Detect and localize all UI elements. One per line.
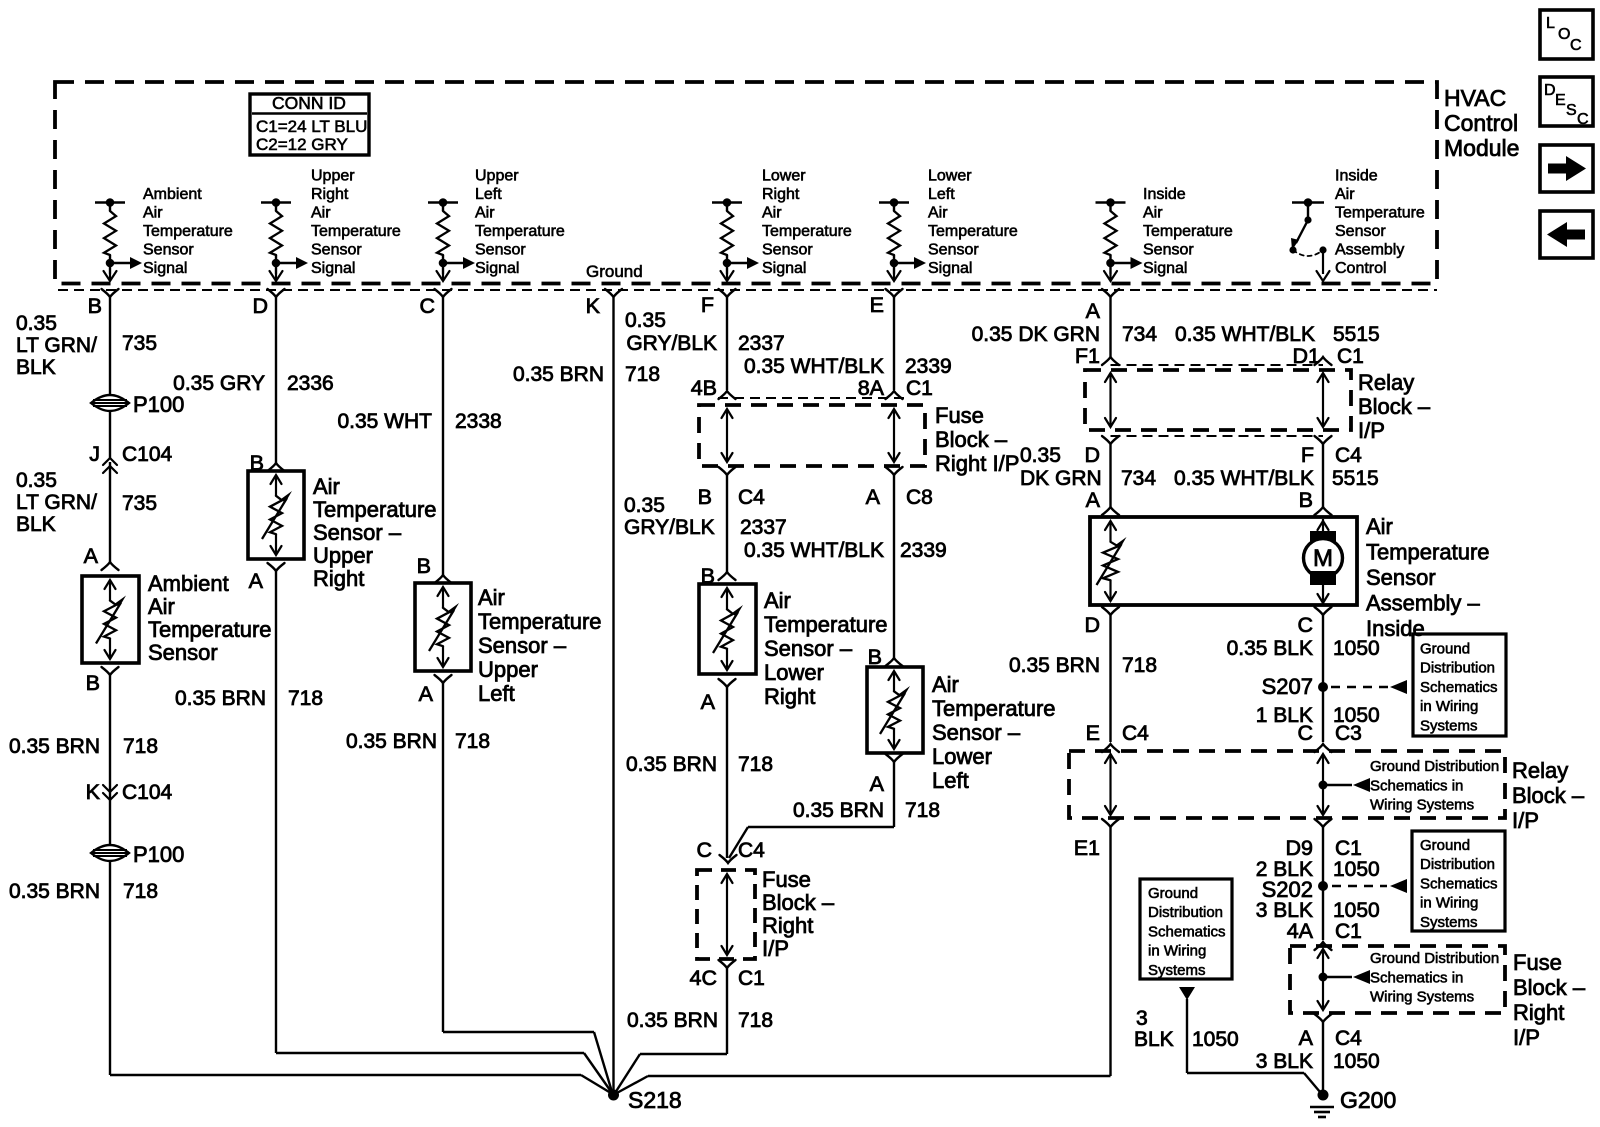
svg-text:Right: Right — [764, 684, 815, 709]
svg-text:Sensor: Sensor — [1143, 242, 1194, 259]
svg-text:Sensor –: Sensor – — [478, 633, 567, 658]
svg-text:Sensor: Sensor — [1366, 565, 1436, 590]
svg-text:Right: Right — [313, 566, 364, 591]
svg-text:C: C — [1297, 721, 1313, 745]
svg-text:8A: 8A — [858, 376, 885, 400]
svg-text:Assembly –: Assembly – — [1366, 591, 1480, 616]
svg-text:Temperature: Temperature — [148, 617, 272, 642]
svg-text:Sensor –: Sensor – — [764, 636, 853, 661]
svg-text:Lower: Lower — [764, 660, 824, 685]
svg-text:Sensor: Sensor — [1335, 223, 1386, 240]
svg-text:LT GRN/: LT GRN/ — [16, 491, 97, 514]
svg-text:D: D — [252, 294, 268, 318]
svg-text:1050: 1050 — [1333, 858, 1380, 881]
svg-text:0.35 BRN: 0.35 BRN — [175, 687, 266, 710]
svg-text:S207: S207 — [1262, 674, 1313, 699]
svg-text:A: A — [870, 772, 885, 796]
svg-text:0.35 DK GRN: 0.35 DK GRN — [972, 323, 1100, 346]
svg-text:718: 718 — [1122, 654, 1157, 677]
svg-text:Air: Air — [311, 205, 331, 222]
svg-text:S: S — [1566, 102, 1577, 119]
svg-text:Assembly: Assembly — [1335, 242, 1404, 259]
svg-text:Temperature: Temperature — [143, 223, 233, 240]
svg-text:C1=24 LT BLU: C1=24 LT BLU — [256, 117, 367, 136]
svg-text:in Wiring: in Wiring — [1420, 698, 1478, 715]
svg-text:D9: D9 — [1286, 836, 1313, 860]
svg-text:D: D — [1084, 443, 1100, 467]
svg-text:Schematics in: Schematics in — [1370, 777, 1463, 794]
svg-text:Lower: Lower — [932, 744, 992, 769]
svg-text:4C: 4C — [690, 966, 717, 990]
svg-text:0.35 BRN: 0.35 BRN — [9, 735, 100, 758]
svg-text:Sensor: Sensor — [762, 242, 813, 259]
svg-text:Upper: Upper — [313, 543, 373, 568]
svg-text:C1: C1 — [1335, 920, 1362, 943]
svg-text:Temperature: Temperature — [932, 696, 1056, 721]
svg-text:Sensor: Sensor — [311, 242, 362, 259]
svg-text:Distribution: Distribution — [1420, 660, 1495, 677]
svg-text:718: 718 — [738, 1009, 773, 1032]
svg-text:0.35: 0.35 — [16, 469, 57, 492]
svg-text:E1: E1 — [1074, 836, 1100, 860]
svg-text:734: 734 — [1121, 467, 1156, 490]
svg-text:718: 718 — [455, 730, 490, 753]
svg-text:Right: Right — [762, 913, 813, 938]
svg-text:0.35: 0.35 — [1020, 444, 1061, 467]
svg-text:BLK: BLK — [16, 513, 56, 536]
svg-text:O: O — [1558, 26, 1570, 43]
svg-text:Air: Air — [143, 205, 163, 222]
svg-text:2339: 2339 — [905, 355, 952, 378]
svg-text:Block –: Block – — [762, 890, 835, 915]
svg-text:Sensor: Sensor — [148, 640, 218, 665]
svg-text:Ground Distribution: Ground Distribution — [1370, 950, 1499, 967]
svg-text:Air: Air — [313, 474, 340, 499]
svg-text:0.35 BRN: 0.35 BRN — [626, 753, 717, 776]
svg-text:Block –: Block – — [1512, 783, 1585, 808]
svg-text:C104: C104 — [122, 443, 173, 466]
svg-text:Signal: Signal — [475, 260, 519, 277]
svg-text:F: F — [1301, 443, 1314, 467]
svg-text:DK GRN: DK GRN — [1020, 467, 1102, 490]
svg-text:Temperature: Temperature — [311, 223, 401, 240]
svg-text:Temperature: Temperature — [928, 223, 1018, 240]
svg-text:Air: Air — [475, 205, 495, 222]
svg-text:Temperature: Temperature — [762, 223, 852, 240]
svg-text:Relay: Relay — [1358, 370, 1414, 395]
svg-text:Air: Air — [1366, 514, 1393, 539]
svg-text:Wiring Systems: Wiring Systems — [1370, 989, 1474, 1006]
svg-text:Control: Control — [1335, 260, 1387, 277]
svg-text:C4: C4 — [1335, 1027, 1362, 1050]
svg-text:Schematics in: Schematics in — [1370, 969, 1463, 986]
svg-text:Ground Distribution: Ground Distribution — [1370, 758, 1499, 775]
svg-text:Block –: Block – — [1513, 975, 1586, 1000]
svg-text:B: B — [698, 485, 712, 509]
svg-text:Signal: Signal — [311, 260, 355, 277]
svg-text:Ground: Ground — [1148, 885, 1198, 902]
svg-text:CONN ID: CONN ID — [272, 93, 346, 113]
svg-text:0.35 BRN: 0.35 BRN — [346, 730, 437, 753]
svg-text:in Wiring: in Wiring — [1148, 943, 1206, 960]
svg-text:Signal: Signal — [1143, 260, 1187, 277]
svg-text:Ambient: Ambient — [143, 186, 202, 203]
svg-text:2339: 2339 — [900, 539, 947, 562]
svg-text:GRY/BLK: GRY/BLK — [626, 332, 717, 355]
svg-text:Temperature: Temperature — [1143, 223, 1233, 240]
svg-text:1050: 1050 — [1192, 1028, 1239, 1051]
svg-text:0.35 WHT/BLK: 0.35 WHT/BLK — [1175, 323, 1315, 346]
svg-text:LT GRN/: LT GRN/ — [16, 334, 97, 357]
svg-text:0.35 WHT: 0.35 WHT — [337, 410, 432, 433]
svg-text:I/P: I/P — [1512, 808, 1539, 833]
svg-text:718: 718 — [738, 753, 773, 776]
svg-text:Air: Air — [1143, 205, 1163, 222]
svg-text:Air: Air — [928, 205, 948, 222]
svg-text:Fuse: Fuse — [935, 403, 984, 428]
svg-text:2337: 2337 — [738, 332, 785, 355]
svg-text:Air: Air — [148, 594, 175, 619]
svg-text:5515: 5515 — [1333, 323, 1380, 346]
svg-text:2336: 2336 — [287, 372, 334, 395]
svg-text:Ground: Ground — [586, 262, 643, 281]
svg-text:A: A — [84, 544, 99, 568]
svg-text:1050: 1050 — [1333, 637, 1380, 660]
svg-text:Right: Right — [762, 186, 800, 203]
svg-text:Signal: Signal — [143, 260, 187, 277]
svg-text:Temperature: Temperature — [764, 612, 888, 637]
svg-text:Temperature: Temperature — [475, 223, 565, 240]
svg-text:Block –: Block – — [935, 427, 1008, 452]
svg-text:Sensor: Sensor — [143, 242, 194, 259]
svg-text:C1: C1 — [906, 377, 933, 400]
svg-text:C1: C1 — [1337, 345, 1364, 368]
svg-text:4B: 4B — [691, 376, 717, 400]
svg-text:Module: Module — [1444, 135, 1519, 161]
svg-text:3: 3 — [1136, 1007, 1148, 1030]
svg-text:Inside: Inside — [1335, 168, 1378, 185]
svg-text:Ground: Ground — [1420, 641, 1470, 658]
svg-text:1050: 1050 — [1333, 899, 1380, 922]
svg-text:Fuse: Fuse — [762, 867, 811, 892]
svg-text:Signal: Signal — [762, 260, 806, 277]
svg-text:A: A — [419, 682, 434, 706]
svg-text:L: L — [1546, 15, 1555, 32]
svg-text:A: A — [701, 690, 716, 714]
svg-text:0.35 BRN: 0.35 BRN — [793, 799, 884, 822]
svg-text:Air: Air — [932, 672, 959, 697]
svg-text:HVAC: HVAC — [1444, 85, 1506, 111]
svg-text:Fuse: Fuse — [1513, 950, 1562, 975]
svg-text:Signal: Signal — [928, 260, 972, 277]
svg-text:0.35 WHT/BLK: 0.35 WHT/BLK — [744, 355, 884, 378]
svg-text:735: 735 — [122, 332, 157, 355]
svg-text:F: F — [701, 293, 714, 317]
svg-text:I/P: I/P — [1513, 1025, 1540, 1050]
svg-text:C3: C3 — [1335, 722, 1362, 745]
svg-text:C: C — [1577, 111, 1589, 128]
svg-text:Air: Air — [764, 588, 791, 613]
svg-text:Distribution: Distribution — [1148, 904, 1223, 921]
svg-text:C4: C4 — [738, 839, 765, 862]
svg-text:Left: Left — [932, 768, 969, 793]
svg-text:Right I/P: Right I/P — [935, 451, 1019, 476]
svg-text:Right: Right — [1513, 1000, 1564, 1025]
svg-text:Wiring Systems: Wiring Systems — [1370, 797, 1474, 814]
svg-text:Temperature: Temperature — [313, 497, 437, 522]
svg-text:0.35: 0.35 — [624, 494, 665, 517]
svg-text:F1: F1 — [1075, 344, 1100, 368]
svg-text:718: 718 — [905, 799, 940, 822]
svg-text:C8: C8 — [906, 486, 933, 509]
svg-text:C: C — [1570, 37, 1582, 54]
svg-text:Control: Control — [1444, 110, 1518, 136]
svg-text:I/P: I/P — [1358, 418, 1385, 443]
svg-text:Temperature: Temperature — [1335, 205, 1425, 222]
svg-text:Right: Right — [311, 186, 349, 203]
svg-text:Air: Air — [478, 585, 505, 610]
svg-text:Systems: Systems — [1420, 717, 1478, 734]
svg-text:2337: 2337 — [740, 516, 787, 539]
svg-text:Sensor –: Sensor – — [932, 720, 1021, 745]
svg-text:Sensor: Sensor — [928, 242, 979, 259]
svg-text:C4: C4 — [1122, 722, 1149, 745]
svg-text:Schematics: Schematics — [1420, 875, 1498, 892]
svg-text:Temperature: Temperature — [1366, 540, 1490, 565]
svg-text:P100: P100 — [133, 392, 184, 417]
svg-text:C: C — [419, 294, 435, 318]
svg-text:0.35 BLK: 0.35 BLK — [1227, 637, 1313, 660]
svg-text:Temperature: Temperature — [478, 609, 602, 634]
svg-text:4A: 4A — [1287, 919, 1314, 943]
svg-text:K: K — [586, 294, 601, 318]
svg-text:718: 718 — [123, 735, 158, 758]
svg-text:I/P: I/P — [762, 936, 789, 961]
svg-text:Distribution: Distribution — [1420, 856, 1495, 873]
svg-text:C1: C1 — [1335, 837, 1362, 860]
svg-text:0.35 BRN: 0.35 BRN — [9, 880, 100, 903]
svg-text:734: 734 — [1122, 323, 1157, 346]
svg-text:Schematics: Schematics — [1148, 923, 1226, 940]
svg-text:735: 735 — [122, 492, 157, 515]
svg-text:0.35 BRN: 0.35 BRN — [513, 363, 604, 386]
svg-text:Lower: Lower — [762, 168, 806, 185]
svg-text:Relay: Relay — [1512, 758, 1568, 783]
svg-text:GRY/BLK: GRY/BLK — [624, 516, 715, 539]
svg-text:A: A — [249, 569, 264, 593]
svg-text:C4: C4 — [738, 486, 765, 509]
svg-text:0.35 GRY: 0.35 GRY — [173, 372, 265, 395]
svg-text:in Wiring: in Wiring — [1420, 895, 1478, 912]
svg-text:Left: Left — [475, 186, 502, 203]
svg-text:B: B — [86, 671, 100, 695]
svg-text:P100: P100 — [133, 842, 184, 867]
svg-text:Upper: Upper — [478, 657, 538, 682]
svg-text:E: E — [1555, 92, 1566, 109]
svg-text:C4: C4 — [1335, 444, 1362, 467]
svg-text:Inside: Inside — [1143, 186, 1186, 203]
svg-text:718: 718 — [625, 363, 660, 386]
svg-text:Ambient: Ambient — [148, 571, 229, 596]
svg-text:0.35 BRN: 0.35 BRN — [1009, 654, 1100, 677]
svg-text:C: C — [1297, 613, 1313, 637]
svg-text:BLK: BLK — [16, 356, 56, 379]
svg-text:Lower: Lower — [928, 168, 972, 185]
svg-text:M: M — [1313, 545, 1333, 572]
svg-text:2338: 2338 — [455, 410, 502, 433]
svg-text:5515: 5515 — [1332, 467, 1379, 490]
svg-text:A: A — [1086, 488, 1101, 512]
svg-text:B: B — [88, 294, 102, 318]
svg-text:C2=12 GRY: C2=12 GRY — [256, 135, 348, 154]
svg-text:0.35 BRN: 0.35 BRN — [627, 1009, 718, 1032]
svg-text:K: K — [86, 780, 101, 804]
svg-text:Block –: Block – — [1358, 394, 1431, 419]
svg-text:E: E — [870, 293, 884, 317]
svg-text:B: B — [1299, 488, 1313, 512]
svg-text:1050: 1050 — [1333, 1050, 1380, 1073]
svg-text:Schematics: Schematics — [1420, 679, 1498, 696]
svg-text:0.35 WHT/BLK: 0.35 WHT/BLK — [744, 539, 884, 562]
svg-text:S218: S218 — [628, 1087, 682, 1113]
svg-text:Sensor –: Sensor – — [313, 520, 402, 545]
svg-text:718: 718 — [123, 880, 158, 903]
svg-text:Left: Left — [478, 681, 515, 706]
svg-text:BLK: BLK — [1134, 1028, 1174, 1051]
svg-text:Air: Air — [762, 205, 782, 222]
svg-text:0.35: 0.35 — [625, 309, 666, 332]
svg-text:A: A — [1299, 1026, 1314, 1050]
svg-text:B: B — [417, 554, 431, 578]
svg-text:A: A — [1086, 299, 1101, 323]
svg-text:C: C — [696, 838, 712, 862]
svg-text:718: 718 — [288, 687, 323, 710]
svg-text:D: D — [1544, 82, 1556, 99]
svg-text:0.35: 0.35 — [16, 312, 57, 335]
svg-text:A: A — [866, 485, 881, 509]
svg-text:D: D — [1084, 613, 1100, 637]
svg-text:Systems: Systems — [1420, 914, 1478, 931]
svg-text:Air: Air — [1335, 186, 1355, 203]
svg-text:C104: C104 — [122, 781, 173, 804]
svg-text:Ground: Ground — [1420, 837, 1470, 854]
svg-text:3 BLK: 3 BLK — [1256, 1050, 1313, 1073]
svg-text:Sensor: Sensor — [475, 242, 526, 259]
svg-text:Systems: Systems — [1148, 962, 1206, 979]
svg-text:0.35 WHT/BLK: 0.35 WHT/BLK — [1174, 467, 1314, 490]
svg-text:E: E — [1086, 721, 1100, 745]
svg-text:Upper: Upper — [311, 168, 355, 185]
svg-text:Upper: Upper — [475, 168, 519, 185]
svg-text:Left: Left — [928, 186, 955, 203]
svg-text:G200: G200 — [1340, 1087, 1396, 1113]
svg-text:C1: C1 — [738, 967, 765, 990]
svg-text:J: J — [89, 442, 100, 466]
